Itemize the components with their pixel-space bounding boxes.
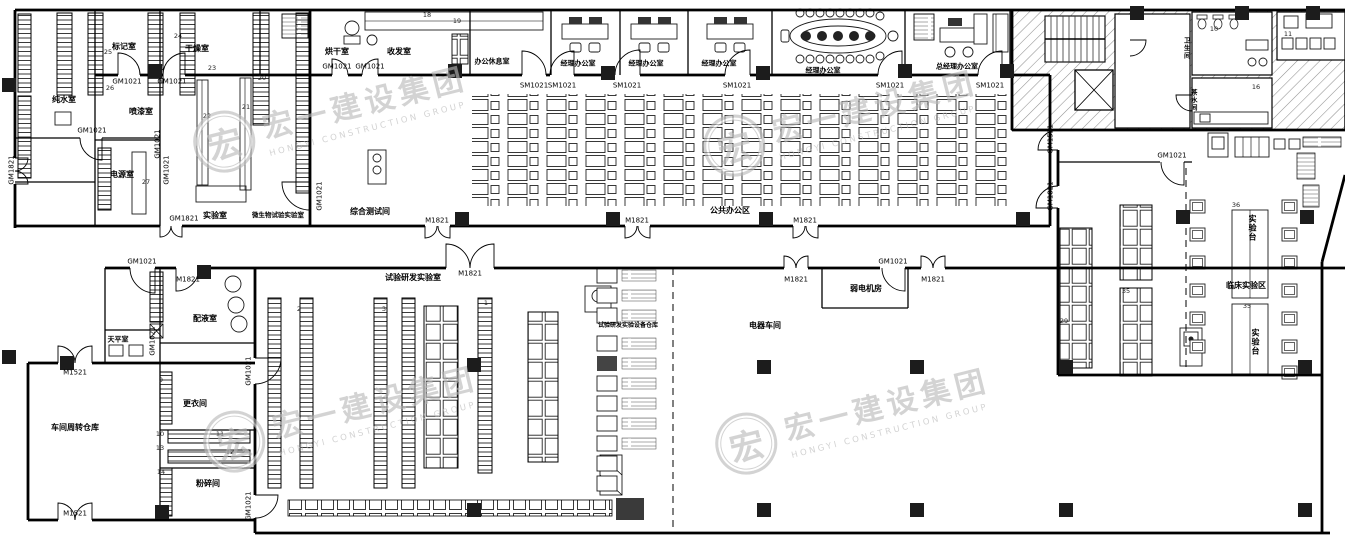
column: [155, 505, 169, 519]
door-swing-icon: [522, 51, 546, 75]
door-swing-icon: [470, 244, 494, 268]
door-swing-icon: [625, 226, 637, 238]
door-swing-icon: [255, 495, 278, 518]
column: [148, 64, 162, 78]
column: [1300, 210, 1314, 224]
column: [1016, 212, 1030, 226]
warehouse-block-fixtures: [109, 272, 250, 516]
column: [1235, 6, 1249, 20]
column: [910, 503, 924, 517]
door-swing-icon: [1036, 186, 1058, 208]
door-swing-icon: [171, 226, 182, 237]
column: [759, 212, 773, 226]
column: [757, 360, 771, 374]
column: [2, 350, 16, 364]
door-swing-icon: [933, 256, 945, 268]
column: [1000, 64, 1014, 78]
stair-core-hatch: [1012, 10, 1345, 130]
door-swing-icon: [176, 268, 199, 291]
column: [197, 265, 211, 279]
door-swing-icon: [75, 503, 92, 520]
open-office-desks: [472, 94, 1008, 206]
column: [606, 212, 620, 226]
column: [910, 360, 924, 374]
door-swing-icon: [75, 346, 92, 363]
elevator-shaft: [1075, 70, 1113, 110]
door-swing-icon: [446, 244, 470, 268]
column: [1130, 6, 1144, 20]
door-swing-icon: [615, 50, 640, 75]
column: [601, 66, 615, 80]
column: [756, 66, 770, 80]
door-swing-icon: [425, 226, 437, 238]
column: [467, 358, 481, 372]
door-swing-icon: [1161, 162, 1184, 185]
column: [898, 64, 912, 78]
column: [1298, 360, 1312, 374]
conference-table: [781, 9, 898, 63]
general-manager-office-furniture: [914, 14, 1008, 57]
column: [467, 503, 481, 517]
plan-drawing: [0, 0, 1345, 548]
column: [757, 503, 771, 517]
door-swing-icon: [806, 226, 818, 238]
floor-plan-canvas: GM1021GM1021GM1021GM1021GM1021GM1821GM10…: [0, 0, 1345, 548]
column: [2, 78, 16, 92]
column: [448, 64, 462, 78]
column: [1059, 360, 1073, 374]
door-swing-icon: [438, 226, 450, 238]
column: [455, 212, 469, 226]
right-lab-furniture: [1060, 133, 1341, 379]
column: [1298, 503, 1312, 517]
manager-office-desks: [562, 17, 753, 52]
door-swing-icon: [725, 50, 750, 75]
door-swing-icon: [882, 268, 905, 291]
door-swing-icon: [784, 256, 796, 268]
equipment-column: [585, 268, 656, 491]
column: [1176, 210, 1190, 224]
door-swing-icon: [118, 53, 140, 75]
door-swing-icon: [796, 256, 808, 268]
door-swing-icon: [362, 59, 378, 75]
door-swing-icon: [638, 226, 650, 238]
rnd-lab-racks: [268, 298, 644, 520]
door-swing-icon: [160, 226, 171, 237]
column: [1059, 503, 1073, 517]
top-left-rack-shelving: [18, 13, 309, 214]
door-swing-icon: [921, 256, 933, 268]
door-swing-icon: [1038, 130, 1058, 150]
door-swing-icon: [978, 51, 1002, 75]
door-swing-icon: [332, 59, 348, 75]
stair-flight: [1045, 16, 1105, 62]
door-swing-icon: [793, 226, 805, 238]
door-swing-icon: [58, 503, 75, 520]
door-swing-icon: [550, 51, 574, 75]
column: [60, 356, 74, 370]
column: [1306, 6, 1320, 20]
